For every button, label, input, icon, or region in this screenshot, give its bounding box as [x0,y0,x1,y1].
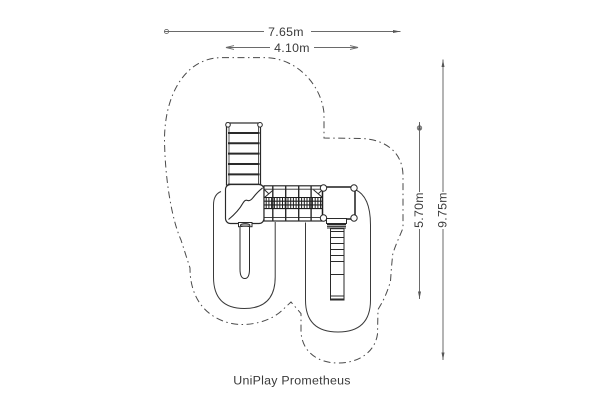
svg-text:UniPlay Prometheus: UniPlay Prometheus [233,374,350,388]
svg-text:5.70m: 5.70m [412,192,426,228]
svg-text:7.65m: 7.65m [268,25,304,39]
svg-text:4.10m: 4.10m [274,41,310,55]
svg-text:9.75m: 9.75m [435,192,449,228]
